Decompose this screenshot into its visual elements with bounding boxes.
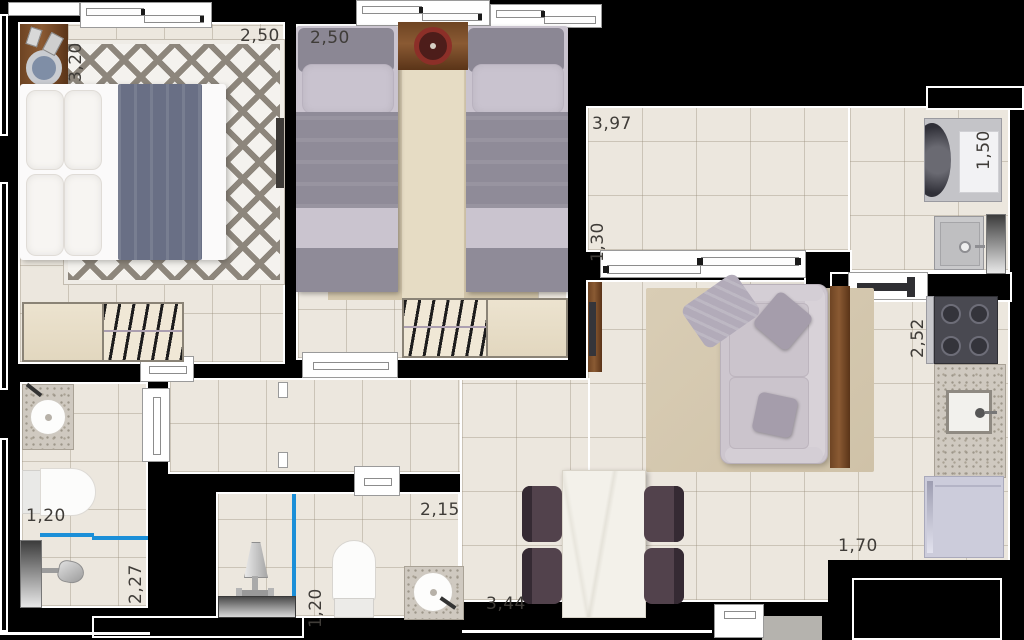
toilet-bowl: [332, 540, 376, 602]
sink-faucet: [975, 245, 985, 248]
dim-bath1-width: 1,20: [26, 506, 66, 526]
tv-panel: [588, 282, 602, 372]
sofa-armrest-bottom: [725, 447, 823, 463]
slab-edge-line-right: [462, 630, 712, 633]
blanket: [466, 112, 568, 208]
dim-kitchen-width: 1,70: [838, 536, 878, 556]
dining-table: [562, 470, 646, 618]
shower-screen-line: [40, 533, 94, 537]
faucet-arm: [985, 411, 997, 414]
stove: [934, 296, 998, 364]
bedroom1-window: [80, 2, 212, 28]
shower-stem: [252, 576, 258, 590]
neighbor-wall-mid: [0, 182, 8, 390]
bedroom2-door: [302, 352, 398, 378]
bathroom1-counter: [22, 384, 74, 450]
shower-screen-line-vertical: [292, 494, 296, 602]
faucet: [26, 383, 43, 397]
sink-faucet: [975, 408, 985, 418]
entry-door: [714, 604, 764, 638]
fridge-handle: [927, 481, 933, 553]
tv: [589, 302, 596, 356]
dim-bath2-depth: 1,20: [306, 588, 326, 628]
blanket-foot: [466, 248, 568, 292]
drain: [45, 414, 52, 421]
laundry-duct: [986, 214, 1006, 274]
dim-bedroom2-width: 2,50: [310, 28, 350, 48]
bed-blanket: [118, 84, 202, 260]
bedroom2-wardrobe: [402, 298, 568, 358]
laundry-sink: [934, 216, 984, 270]
dining-chair: [522, 486, 562, 542]
wardrobe-shelf: [24, 304, 104, 360]
hall-jamb-lower: [278, 452, 288, 468]
dim-balcony-width: 3,97: [592, 114, 632, 134]
washer-drum: [924, 123, 951, 197]
wall-laundry-top: [926, 86, 1024, 110]
bedroom1-wall-object: [276, 118, 284, 188]
dim-bath2-width: 2,15: [420, 500, 460, 520]
dim-kitchen-depth: 2,52: [908, 318, 928, 358]
entry-landing: [762, 616, 822, 640]
bedroom2-window-right: [490, 4, 602, 28]
dining-chair: [644, 486, 684, 542]
toilet-tank: [334, 598, 374, 618]
neighbor-wall-top: [0, 14, 8, 136]
desk-mirror: [26, 50, 62, 86]
floor-plan: 3,20 2,50 2,50 3,97 1,30 1,50 2,52 1,20 …: [0, 0, 1024, 640]
dim-balcony-depth: 1,30: [588, 222, 608, 262]
bathroom1-door: [142, 388, 170, 462]
desk-frame-small: [26, 27, 43, 48]
nightstand-tray: [414, 27, 452, 65]
bedroom2-nightstand: [398, 22, 468, 70]
dim-bedroom1-depth: 3,20: [66, 42, 86, 82]
bedroom1-desk: [20, 24, 68, 88]
bedroom1-bed: [20, 84, 226, 260]
bathroom2-shower-column: [236, 542, 274, 602]
sink-drain: [959, 241, 971, 253]
dining-chair: [522, 548, 562, 604]
dim-dining-width: 3,44: [486, 594, 526, 614]
drain: [430, 589, 437, 596]
wardrobe-hangers: [104, 304, 182, 360]
bedroom2-bed-left: [296, 26, 398, 292]
exterior-box-outline: [92, 616, 304, 638]
bathroom2-counter: [404, 566, 464, 620]
bathroom1-shaft: [20, 540, 42, 608]
bathroom2-door: [354, 466, 400, 496]
dining-chair: [644, 548, 684, 604]
sofa-pillow: [751, 391, 798, 438]
wardrobe-hangers: [404, 300, 488, 356]
shower-head: [56, 559, 86, 586]
neighbor-wall-bottom: [0, 438, 8, 632]
bathroom2-bench: [218, 596, 296, 618]
bedroom2-bed-right: [466, 26, 568, 292]
blanket-foot: [296, 248, 398, 292]
hallway-floor: [168, 378, 462, 474]
kitchen-sink: [946, 390, 992, 434]
dim-bedroom1-width: 2,50: [240, 26, 280, 46]
wardrobe-shelf: [488, 300, 566, 356]
bedroom2-runner: [402, 66, 464, 302]
hall-jamb-upper: [278, 382, 288, 398]
exterior-hall-outline: [852, 578, 1002, 640]
sideboard: [830, 286, 850, 468]
shower-cone: [244, 542, 268, 578]
balcony-sliding-door: [600, 250, 806, 278]
dim-bath1-depth: 2,27: [126, 564, 146, 604]
neighbor-window-sill: [8, 2, 80, 16]
bathroom2-toilet: [332, 540, 376, 620]
fridge-seam: [935, 485, 1001, 487]
dim-laundry-width: 1,50: [974, 130, 994, 170]
bedroom1-wardrobe: [22, 302, 184, 362]
blanket: [296, 112, 398, 208]
refrigerator: [924, 476, 1004, 558]
shower-screen-line: [92, 536, 148, 540]
